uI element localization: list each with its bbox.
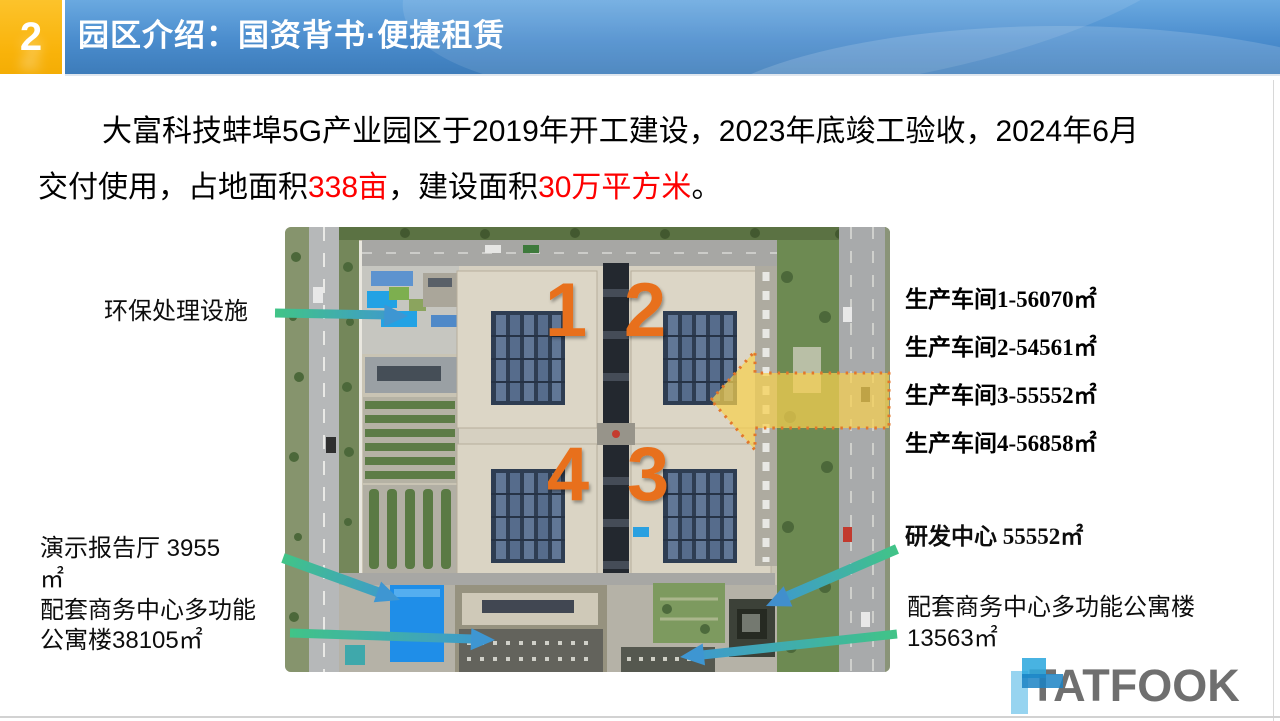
slide-header: 2 园区介绍：国资背书·便捷租赁 [0, 0, 1280, 78]
callout-text: 公寓楼38105㎡ [40, 626, 256, 656]
roof-building-2 [663, 311, 737, 405]
callout-text: 配套商务中心多功能 [40, 596, 256, 626]
workshop-4-label: 生产车间4-56858㎡ [905, 430, 1097, 458]
roof-building-3 [663, 469, 737, 563]
south-zone [339, 573, 777, 672]
callout-text: 配套商务中心多功能公寓楼 [907, 592, 1195, 623]
workshop-area-list: 生产车间1-56070㎡ 生产车间2-54561㎡ 生产车间3-55552㎡ 生… [905, 286, 1097, 478]
callout-environment-facility: 环保处理设施 [104, 291, 248, 326]
slide: 2 园区介绍：国资背书·便捷租赁 大富科技蚌埠5G产业园区于2019年开工建设，… [0, 0, 1280, 721]
callout-rd-center: 研发中心 55552㎡ [905, 517, 1083, 551]
satellite-map [285, 227, 890, 672]
environment-facility-buildings [362, 266, 462, 393]
logo-mark-t-bar [1022, 674, 1063, 688]
west-parking [363, 485, 459, 573]
intro-period: 。 [691, 171, 721, 204]
workshop-3-label: 生产车间3-55552㎡ [905, 382, 1097, 410]
roof-building-1 [491, 311, 565, 405]
callout-text: 环保处理设施 [104, 291, 248, 326]
tatfook-logo: TATFOOK [1003, 658, 1275, 716]
intro-text: 交付使用，占地面积 [38, 171, 308, 204]
callout-text: 13563㎡ [907, 623, 1195, 654]
section-number: 2 [20, 17, 42, 57]
workshop-1-label: 生产车间1-56070㎡ [905, 286, 1097, 314]
intro-text: ，建设面积 [388, 171, 538, 204]
callout-text: ㎡ [40, 564, 220, 595]
callout-text: 演示报告厅 3955 [40, 533, 220, 564]
callout-apartment-west: 配套商务中心多功能 公寓楼38105㎡ [40, 596, 256, 656]
header-bar: 园区介绍：国资背书·便捷租赁 [65, 0, 1280, 76]
built-area-value: 30万平方米 [538, 171, 691, 204]
hedge-garden [363, 397, 459, 483]
callout-apartment-east: 配套商务中心多功能公寓楼 13563㎡ [907, 592, 1195, 654]
slide-right-border [1273, 80, 1274, 721]
roof-building-4 [491, 469, 565, 563]
callout-demo-hall: 演示报告厅 3955 ㎡ [40, 533, 220, 595]
satellite-photo [285, 227, 890, 672]
page-title: 园区介绍：国资背书·便捷租赁 [65, 0, 1280, 56]
section-number-badge: 2 [0, 0, 62, 74]
workshop-2-label: 生产车间2-54561㎡ [905, 334, 1097, 362]
land-area-value: 338亩 [308, 171, 388, 204]
intro-line-1: 大富科技蚌埠5G产业园区于2019年开工建设，2023年底竣工验收，2024年6… [38, 104, 1244, 160]
intro-paragraph: 大富科技蚌埠5G产业园区于2019年开工建设，2023年底竣工验收，2024年6… [38, 104, 1244, 216]
slide-bottom-border [0, 716, 1280, 718]
intro-line-2: 交付使用，占地面积338亩，建设面积30万平方米。 [38, 160, 1244, 216]
